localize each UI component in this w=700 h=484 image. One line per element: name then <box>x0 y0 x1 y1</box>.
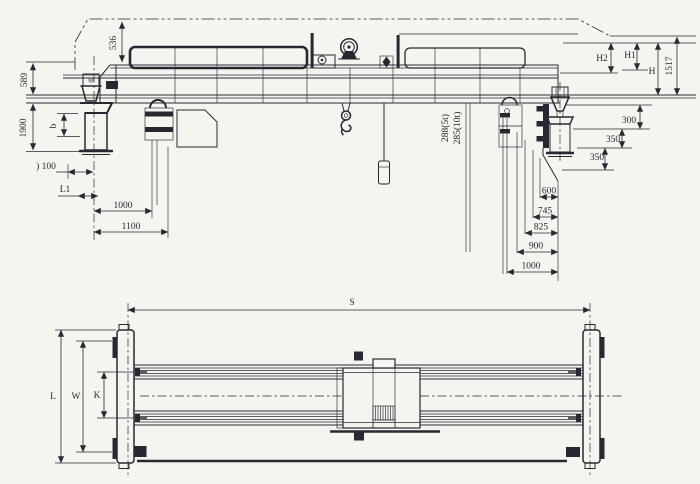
dimensions-right-middle: 300 350 350 <box>562 105 652 170</box>
dim-S: S <box>349 298 354 308</box>
wheel-icon <box>113 438 118 459</box>
bottom-view-plan: S <box>50 298 622 477</box>
hoist-trolley-top <box>313 39 393 68</box>
dim-350-upper: 350 <box>606 135 621 145</box>
dim-350-lower: 350 <box>590 153 605 163</box>
pendant-control <box>379 103 390 184</box>
top-view-side-elevation: 536 589 1900 b ) 100 L1 1000 1100 288( <box>19 19 696 281</box>
dim-288-5t: 288(5t) <box>440 114 451 142</box>
dimensions-right-stack: 600 745 825 900 1000 <box>507 187 558 273</box>
dim-1517: 1517 <box>665 56 675 75</box>
dim-536: 536 <box>109 36 119 51</box>
pendant-station-icon <box>379 161 390 184</box>
dim-L: L <box>50 392 56 402</box>
dimensions-bottom-left: L W K <box>50 330 134 463</box>
dim-W: W <box>72 392 81 402</box>
travel-wheel-icon <box>82 86 100 101</box>
buffer-icon <box>119 325 129 331</box>
dim-b: b <box>49 123 59 128</box>
wheel-icon <box>113 337 118 358</box>
dim-L1: L1 <box>60 185 71 195</box>
dim-100-min: ) 100 <box>36 161 56 172</box>
dim-1000-right: 1000 <box>522 262 541 272</box>
diamond-symbol-icon <box>383 57 391 68</box>
drive-motor-icon <box>135 446 147 457</box>
dim-285-10t: 285(10t) <box>452 112 463 145</box>
right-end-truck <box>499 82 574 181</box>
dim-589: 589 <box>20 73 30 88</box>
dim-745: 745 <box>538 207 553 217</box>
dim-1000-left: 1000 <box>114 201 133 211</box>
dim-H1: H1 <box>624 51 636 61</box>
girder-depth-labels: 288(5t) 285(10t) <box>440 112 463 145</box>
wheel-icon <box>600 438 605 459</box>
bridge-girder <box>26 33 696 103</box>
dim-1900: 1900 <box>19 118 29 137</box>
hook-icon <box>341 120 351 135</box>
dim-H: H <box>649 67 656 77</box>
right-end-carriage <box>566 325 605 469</box>
dim-1100: 1100 <box>122 222 141 232</box>
dim-300: 300 <box>622 116 637 126</box>
hook-block <box>341 103 351 135</box>
technical-drawing-canvas: 536 589 1900 b ) 100 L1 1000 1100 288( <box>0 0 700 484</box>
left-end-carriage <box>113 325 147 469</box>
dim-600: 600 <box>542 187 557 197</box>
walkway-lines <box>137 432 567 462</box>
left-end-truck <box>79 56 118 243</box>
dim-825: 825 <box>534 223 549 233</box>
left-under-girder-brackets <box>145 100 217 238</box>
dim-K: K <box>94 391 101 401</box>
drive-motor-icon <box>566 447 580 457</box>
wheel-icon <box>600 337 605 358</box>
crane-technical-drawing: 536 589 1900 b ) 100 L1 1000 1100 288( <box>0 0 700 484</box>
dimensions-right-upper: H2 H1 H 1517 <box>560 37 677 95</box>
dim-900: 900 <box>529 242 544 252</box>
buffer-icon <box>119 463 129 469</box>
dim-H2: H2 <box>596 54 608 64</box>
